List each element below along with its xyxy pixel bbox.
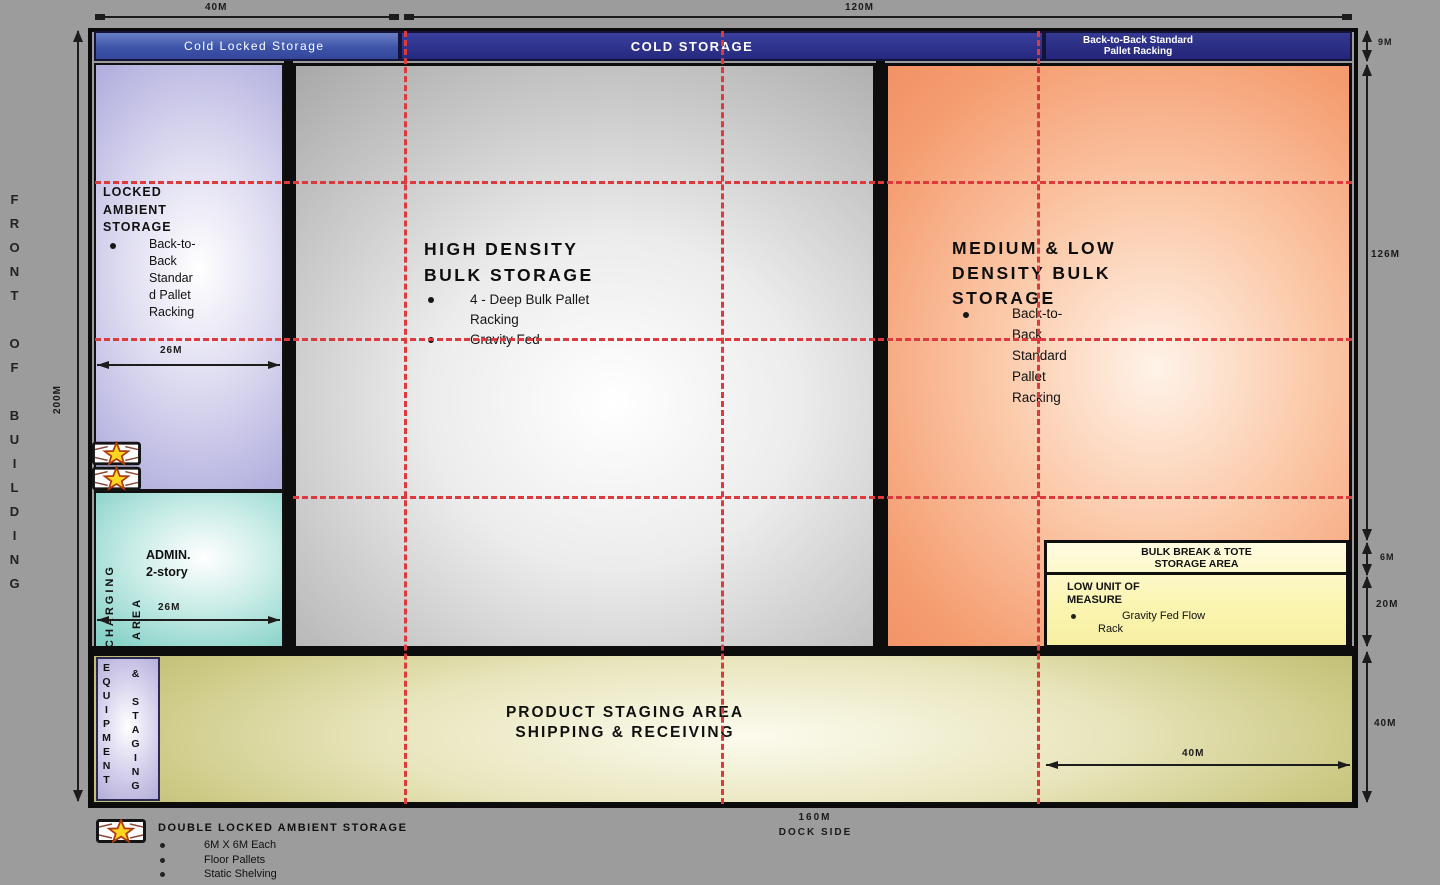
dim-arrow-40m-olive [1046, 764, 1350, 766]
locked-ambient-bullet-dot [110, 243, 116, 249]
dim-arrow-126m [1366, 65, 1368, 540]
dim-line-40m-top [95, 16, 399, 18]
grid-line-horizontal-3 [293, 496, 1352, 499]
bulk-break-tote-box: BULK BREAK & TOTE STORAGE AREA LOW UNIT … [1044, 540, 1349, 648]
locked-ambient-title: LOCKED AMBIENT STORAGE [103, 184, 172, 237]
dim-label-26m-teal: 26M [158, 602, 180, 613]
high-density-bullet1-dot [428, 297, 434, 303]
dim-label-160m: 160M [760, 812, 870, 823]
grid-line-vertical-2 [721, 31, 724, 804]
bulk-break-header: BULK BREAK & TOTE STORAGE AREA [1047, 543, 1346, 575]
dim-label-26m-purple: 26M [160, 345, 182, 356]
grid-line-vertical-1 [404, 31, 407, 804]
dim-arrow-26m-purple [97, 364, 280, 366]
charging-vertical-label: CHARGING [104, 526, 116, 648]
legend-star-icon [96, 819, 146, 843]
legend-title: DOUBLE LOCKED AMBIENT STORAGE [158, 822, 407, 834]
dim-arrow-6m [1366, 543, 1368, 575]
dim-label-6m: 6M [1380, 552, 1395, 562]
staging-vertical-label: & STAGING [130, 668, 141, 796]
legend-item: Floor Pallets [204, 854, 265, 866]
dim-label-200m: 200M [52, 368, 63, 414]
bulk-break-bullet: Gravity Fed Flow Rack [1067, 610, 1338, 636]
dim-label-40m-top: 40M [205, 2, 227, 13]
product-staging-title: PRODUCT STAGING AREA SHIPPING & RECEIVIN… [295, 703, 955, 743]
warehouse-layout-diagram: { "colors": { "background": "#9c9c9c", "… [0, 0, 1440, 885]
dim-arrow-40m-right [1366, 652, 1368, 802]
dim-arrow-9m [1366, 31, 1368, 61]
double-locked-storage-icon [92, 441, 141, 466]
cold-locked-storage-label: Cold Locked Storage [184, 39, 325, 53]
dim-label-126m: 126M [1371, 249, 1400, 260]
dock-side-label: DOCK SIDE [748, 827, 883, 838]
medium-low-title: MEDIUM & LOW DENSITY BULK STORAGE [952, 236, 1116, 311]
area-vertical-label: AREA [131, 568, 143, 640]
medium-low-bullet-dot [963, 312, 969, 318]
legend-item: Static Shelving [204, 868, 277, 880]
legend-bullet-dot [160, 858, 165, 863]
back-to-back-racking-bar: Back-to-Back Standard Pallet Racking [1044, 31, 1352, 61]
admin-label: ADMIN. 2-story [146, 547, 190, 581]
dim-label-20m: 20M [1376, 599, 1398, 610]
bulk-break-bullet-dot [1071, 614, 1076, 619]
front-of-building-label: FRONT OF BUILDING [8, 192, 21, 522]
grid-line-horizontal-2 [95, 338, 1352, 341]
equipment-vertical-label: EQUIPMENT [101, 662, 112, 798]
dim-arrow-200m [77, 31, 79, 801]
high-density-title: HIGH DENSITY BULK STORAGE [424, 236, 594, 288]
cold-storage-label: COLD STORAGE [631, 39, 754, 54]
bulk-break-body: LOW UNIT OF MEASURE Gravity Fed Flow Rac… [1047, 575, 1346, 636]
b2b-bar-line2: Pallet Racking [1104, 46, 1172, 57]
locked-ambient-bullet-text: Back-to- Back Standar d Pallet Racking [149, 236, 196, 321]
wall-divider-middle [876, 61, 885, 649]
high-density-bullet1-text: 4 - Deep Bulk Pallet Racking [470, 290, 589, 330]
wall-divider-left [284, 61, 293, 649]
bulk-break-bullet-text: Gravity Fed Flow Rack [1122, 610, 1205, 636]
dim-line-120m-top [404, 16, 1352, 18]
double-locked-storage-icon [92, 466, 141, 491]
grid-line-horizontal-1 [95, 181, 1352, 184]
cold-locked-storage-bar: Cold Locked Storage [94, 31, 400, 61]
dim-label-9m: 9M [1378, 37, 1393, 47]
region-high-density-bulk-storage [293, 63, 876, 649]
dim-arrow-26m-teal [97, 619, 280, 621]
legend-bullet-dot [160, 843, 165, 848]
grid-line-vertical-3 [1037, 31, 1040, 804]
dim-arrow-20m [1366, 577, 1368, 646]
b2b-bar-line1: Back-to-Back Standard [1083, 35, 1193, 46]
legend-bullet-dot [160, 872, 165, 877]
legend-item: 6M X 6M Each [204, 839, 276, 851]
dim-label-40m-right: 40M [1374, 718, 1396, 729]
dim-label-120m-top: 120M [845, 2, 874, 13]
dim-label-40m-olive: 40M [1182, 748, 1204, 759]
